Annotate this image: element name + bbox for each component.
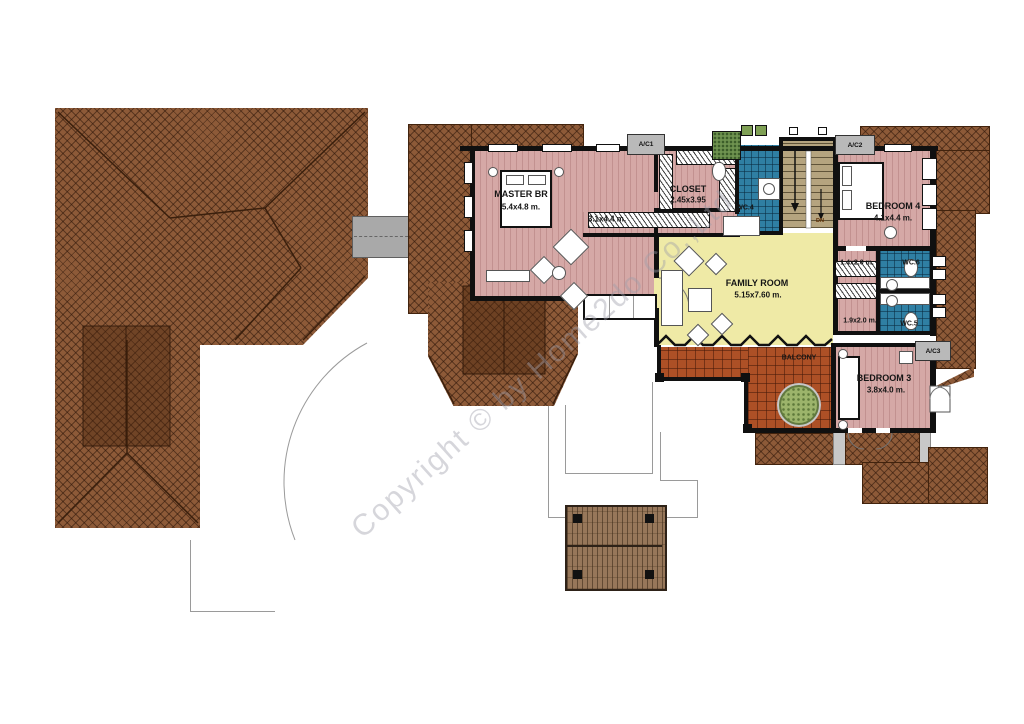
bedside-lamp xyxy=(838,420,848,430)
ground-outline xyxy=(548,405,549,518)
louvre-vent xyxy=(932,256,946,267)
balcony-label: BALCONY xyxy=(782,355,817,362)
window xyxy=(922,184,937,206)
window xyxy=(464,230,473,252)
window xyxy=(488,144,518,152)
wc6-label: WC.6 xyxy=(902,260,920,267)
balcony-planter xyxy=(779,385,819,425)
roof-below-balcony xyxy=(755,433,835,465)
wc4-plant xyxy=(712,131,741,160)
wall xyxy=(654,150,658,192)
room-balcony-left xyxy=(659,347,748,378)
vent-box xyxy=(789,127,798,135)
wc6-sink xyxy=(886,279,898,291)
wc5-label: WC.5 xyxy=(900,321,918,328)
balcony-corner-post xyxy=(655,373,664,382)
deck-post xyxy=(645,570,654,579)
bedside-lamp xyxy=(488,167,498,177)
stairs-dn-label: DN xyxy=(816,218,824,224)
ac1-label: A/C1 xyxy=(639,141,654,148)
family-coffee-table xyxy=(688,288,712,312)
ac-unit-2: A/C2 xyxy=(835,135,875,155)
ground-outline xyxy=(652,382,653,473)
bedroom3-right-door-arcs xyxy=(928,386,954,414)
deck-divider xyxy=(566,545,662,547)
bed-pillow xyxy=(528,175,546,185)
ac-unit-3: A/C3 xyxy=(915,341,951,361)
louvre-vent xyxy=(932,294,946,305)
bed-pillow xyxy=(506,175,524,185)
master-bedroom-dims: 5.4x4.8 m. xyxy=(502,203,540,212)
wall xyxy=(833,331,933,335)
louvre-vent xyxy=(932,269,946,280)
roof-bottom-right-b xyxy=(928,447,988,504)
window xyxy=(922,208,937,230)
bedroom4-label: BEDROOM 4 xyxy=(866,201,921,211)
bed-pillow xyxy=(842,190,852,210)
vent-box xyxy=(818,127,827,135)
ground-outline xyxy=(697,480,698,518)
bedroom3-desk xyxy=(899,351,913,364)
side-table xyxy=(552,266,566,280)
window xyxy=(596,144,620,152)
roof-right-block xyxy=(936,150,990,214)
bedroom4-stool xyxy=(884,226,897,239)
family-room-dims: 5.15x7.60 m. xyxy=(734,291,781,300)
wall xyxy=(876,289,933,293)
bedroom3-label: BEDROOM 3 xyxy=(857,373,912,383)
balcony-corner-post xyxy=(743,424,752,433)
bedroom4-dims: 4.1x4.4 m. xyxy=(874,214,912,223)
ground-outline xyxy=(190,540,191,612)
plant-pot xyxy=(755,125,767,136)
window xyxy=(464,196,473,218)
floor-plan-canvas: A/C1 A/C2 A/C3 MASTER BR 5.4x4.8 m. 3.1x… xyxy=(0,0,1024,724)
bedroom3-dims: 3.8x4.0 m. xyxy=(867,386,905,395)
wall xyxy=(831,343,836,433)
closet-label: CLOSET xyxy=(670,184,707,194)
plant-pot xyxy=(741,125,753,136)
window xyxy=(884,144,912,152)
ac2-label: A/C2 xyxy=(848,142,863,149)
wc5-sink xyxy=(886,295,898,307)
wc4-sink xyxy=(763,183,775,195)
ground-outline xyxy=(565,405,566,474)
ground-outline xyxy=(660,432,661,481)
balcony-corner-post xyxy=(741,373,750,382)
ground-outline xyxy=(565,473,653,474)
deck-post xyxy=(645,514,654,523)
master-bedroom-label: MASTER BR xyxy=(494,189,548,199)
ground-outline xyxy=(660,480,698,481)
bedroom3-bottom-door-arcs xyxy=(846,433,894,455)
sitting-area-dims: 3.1x4.4 m. xyxy=(588,215,626,224)
ac-unit-1: A/C1 xyxy=(627,134,665,155)
bedroom3-bed xyxy=(838,356,860,420)
deck-post xyxy=(573,570,582,579)
dressing-bottom-dims: 1.9x2.0 m. xyxy=(843,318,876,325)
door-gap xyxy=(846,246,866,251)
stairs-arrows xyxy=(783,139,833,228)
roof-bottom-right-a xyxy=(862,462,932,504)
bed-pillow xyxy=(842,166,852,186)
window xyxy=(464,162,473,184)
deck-post xyxy=(573,514,582,523)
folding-door-zigzag xyxy=(657,334,835,348)
bedside-lamp xyxy=(554,167,564,177)
louvre-vent xyxy=(932,307,946,318)
wc4-toilet xyxy=(712,162,726,181)
dresser xyxy=(486,270,530,282)
bedside-lamp xyxy=(838,349,848,359)
window xyxy=(922,158,937,180)
wall xyxy=(657,377,749,381)
ac3-label: A/C3 xyxy=(926,348,941,355)
family-sofa xyxy=(661,270,683,326)
ground-outline xyxy=(190,611,275,612)
wardrobe xyxy=(835,283,877,299)
family-room-label: FAMILY ROOM xyxy=(726,278,789,288)
dressing-top-dims: 1.4x2.0 m. xyxy=(840,260,873,267)
window xyxy=(542,144,572,152)
